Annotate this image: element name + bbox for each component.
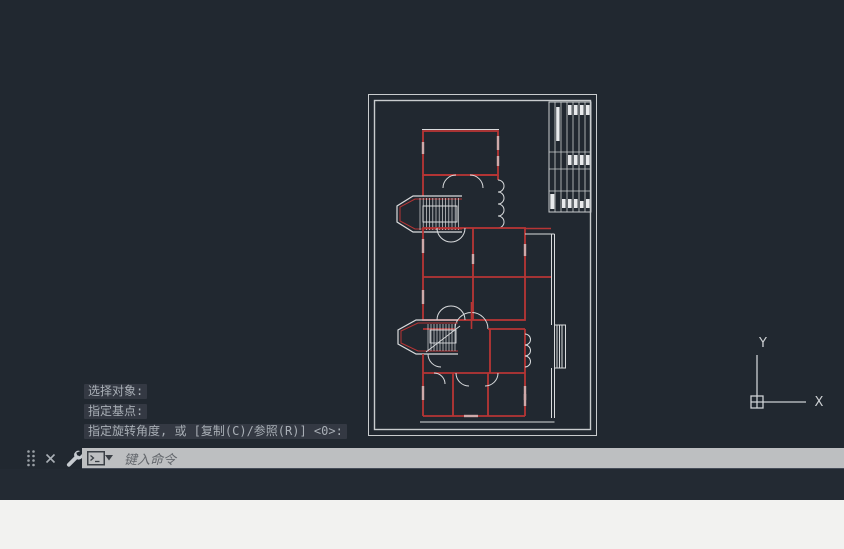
ucs-axis-icon: Y X [745,330,830,415]
ucs-x-label: X [815,395,824,410]
balcony [555,325,566,368]
command-input[interactable]: 键入命令 [82,448,844,468]
grip-handle-icon[interactable] [26,449,36,468]
ucs-y-label: Y [758,336,767,351]
command-history-line: 指定旋转角度, 或 [复制(C)/参照(R)] <0>: [84,424,347,439]
command-prompt-icon[interactable] [87,451,105,466]
area-below-window [0,500,844,549]
customize-wrench-icon[interactable] [65,449,83,467]
command-history-line: 选择对象: [84,384,147,399]
command-history: 选择对象: 指定基点: 指定旋转角度, 或 [复制(C)/参照(R)] <0>: [84,384,347,439]
upper-unit-plan [397,130,504,233]
drawing-frame [369,95,597,436]
recent-commands-dropdown-icon[interactable] [105,455,114,461]
command-history-line: 指定基点: [84,404,147,419]
command-bar-controls [26,447,83,469]
middle-block-plan [420,228,566,422]
app-window: Y X 选择对象: 指定基点: 指定旋转角度, 或 [复制(C)/参照(R)] … [0,0,844,549]
close-icon[interactable] [45,453,56,464]
floor-plan-drawing[interactable] [368,94,600,439]
lower-dark-strip [0,469,844,500]
command-input-placeholder[interactable]: 键入命令 [124,449,176,468]
title-block [549,102,591,212]
